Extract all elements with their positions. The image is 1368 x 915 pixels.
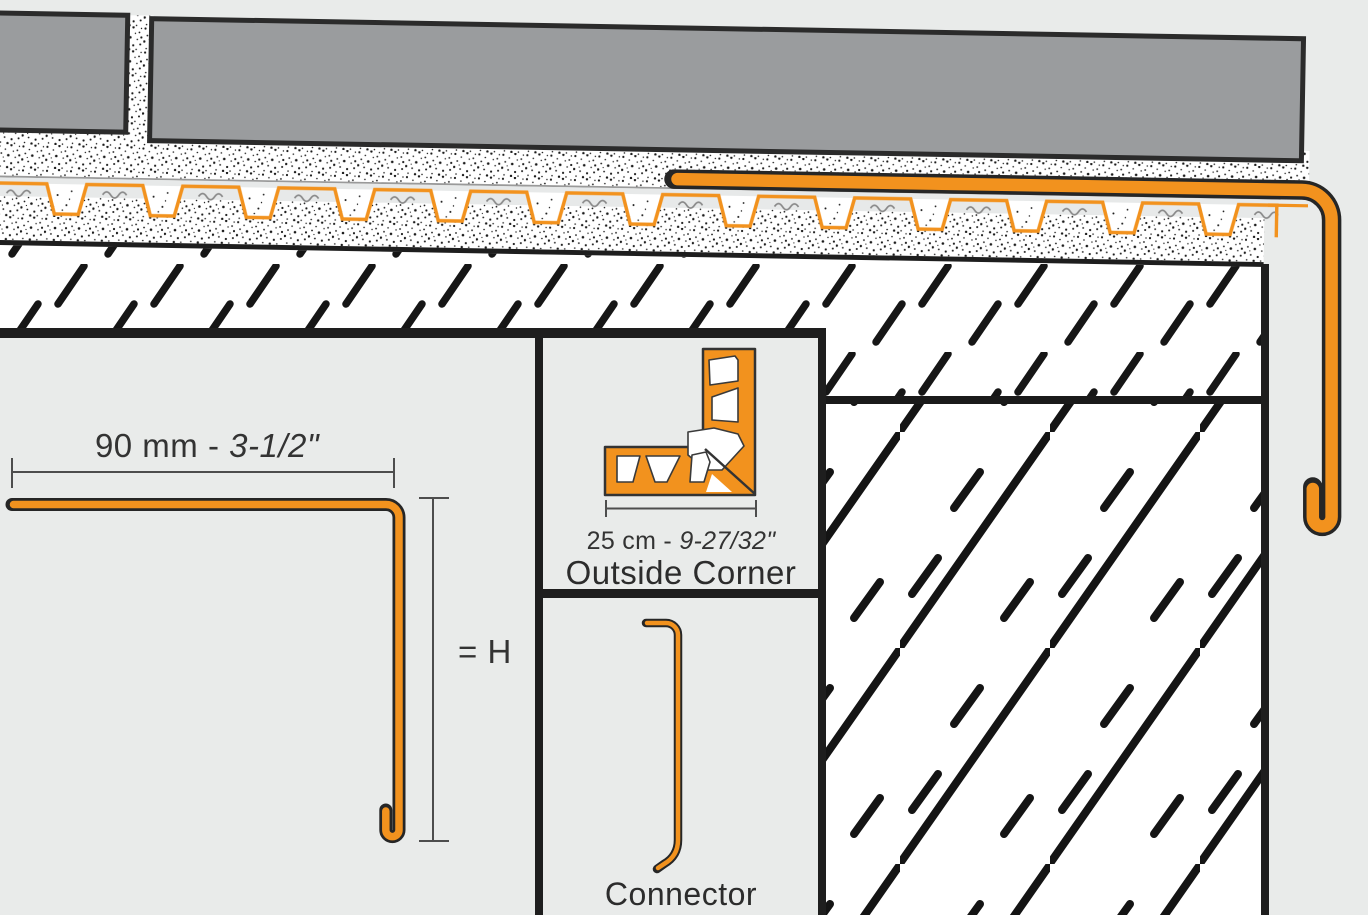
- connector-caption: Connector: [543, 878, 819, 912]
- profile-side-view: [12, 505, 399, 837]
- screed-section: [0, 245, 1267, 402]
- tile-right: [150, 19, 1304, 161]
- installation-diagram: 90 mm - 3-1/2" = H 25 cm - 9-27/32" Outs…: [0, 0, 1368, 915]
- height-dimension-label: = H: [458, 635, 512, 670]
- profile-side-view-face: [14, 505, 400, 837]
- outside-corner-caption: Outside Corner: [543, 556, 819, 591]
- slab-top-line: [820, 396, 1268, 404]
- corner-cutout-1: [709, 356, 738, 385]
- outside-corner-dimension: [606, 500, 756, 517]
- sloped-assembly: [0, 13, 1312, 269]
- outside-corner-dimension-label: 25 cm - 9-27/32": [556, 528, 806, 554]
- wall-outer-face-line: [1261, 264, 1269, 915]
- drainage-mat-end: [1275, 205, 1279, 237]
- connector-glyph: [646, 623, 678, 869]
- edge-profile-anchor-leg: [1268, 205, 1308, 206]
- tile-left: [0, 13, 128, 132]
- box-left-border: [535, 330, 543, 915]
- connector-outline: [646, 623, 678, 869]
- outside-corner-glyph: [605, 349, 755, 495]
- width-dimension-label: 90 mm - 3-1/2": [12, 429, 402, 464]
- detail-area-top-border: [0, 328, 826, 338]
- dimension-drawing: [12, 458, 449, 841]
- connector-face: [647, 623, 678, 868]
- box-right-border: [818, 330, 826, 915]
- profile-side-view-outline: [12, 505, 399, 837]
